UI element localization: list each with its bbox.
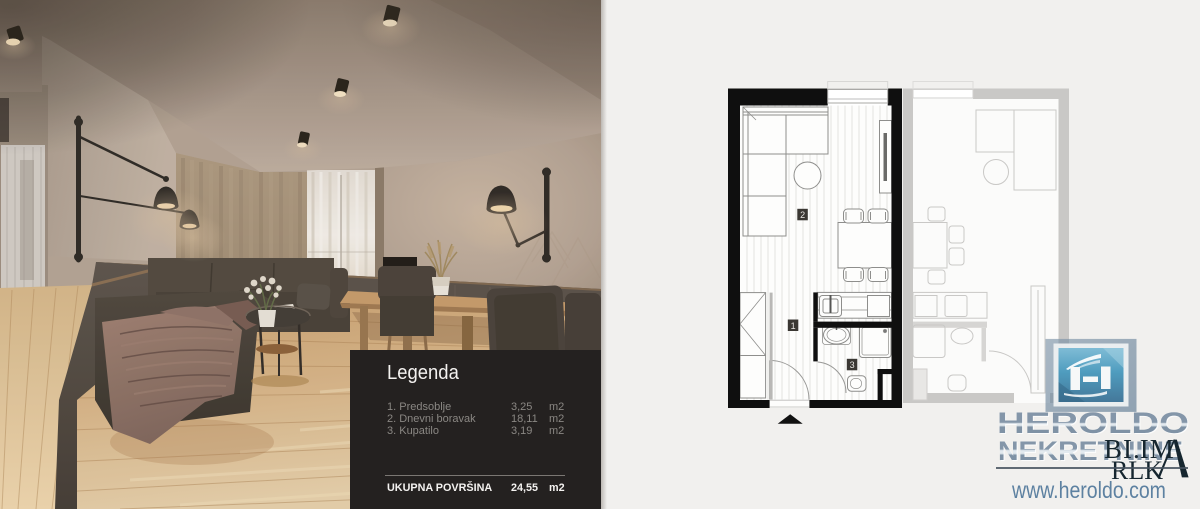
svg-text:1: 1 bbox=[791, 321, 796, 331]
svg-text:2: 2 bbox=[800, 210, 805, 220]
svg-text:3: 3 bbox=[850, 360, 855, 370]
